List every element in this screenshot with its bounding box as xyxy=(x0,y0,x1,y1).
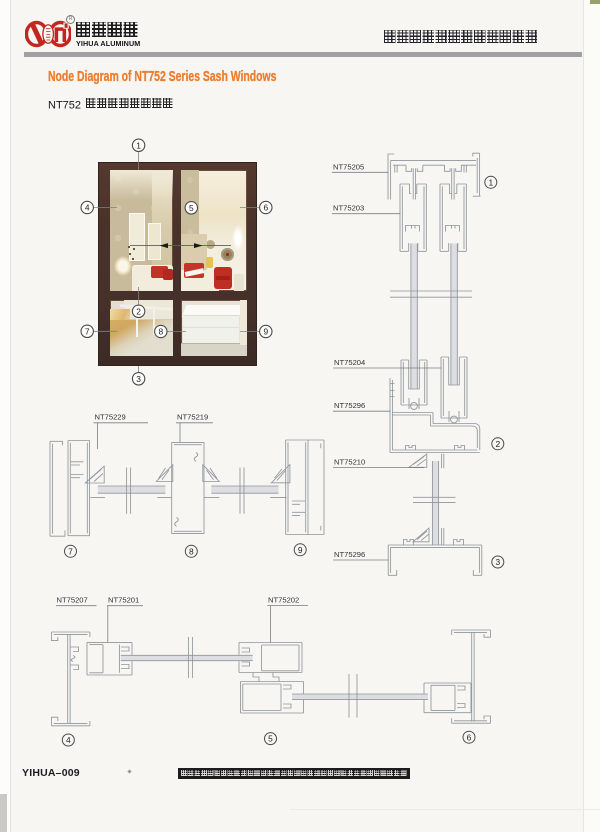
svg-text:2: 2 xyxy=(136,306,141,316)
svg-text:NT75201: NT75201 xyxy=(108,595,139,604)
svg-text:1: 1 xyxy=(136,140,141,150)
svg-text:NT75229: NT75229 xyxy=(95,413,126,422)
svg-text:7: 7 xyxy=(85,326,90,336)
svg-text:5: 5 xyxy=(189,203,194,213)
svg-text:4: 4 xyxy=(66,735,71,745)
svg-text:6: 6 xyxy=(263,203,268,213)
svg-text:3: 3 xyxy=(136,374,141,384)
svg-text:4: 4 xyxy=(85,203,90,213)
svg-text:6: 6 xyxy=(467,732,472,742)
svg-text:NT75204: NT75204 xyxy=(334,358,365,367)
svg-text:NT75202: NT75202 xyxy=(268,595,299,604)
svg-text:3: 3 xyxy=(495,557,500,567)
svg-text:5: 5 xyxy=(268,734,273,744)
svg-text:NT75219: NT75219 xyxy=(177,413,208,422)
svg-text:NT75205: NT75205 xyxy=(333,163,364,172)
svg-text:NT75207: NT75207 xyxy=(57,595,88,604)
svg-text:NT75296: NT75296 xyxy=(334,401,365,410)
svg-text:7: 7 xyxy=(68,546,73,556)
svg-text:1: 1 xyxy=(488,177,493,187)
svg-text:9: 9 xyxy=(263,327,268,337)
svg-text:NT75210: NT75210 xyxy=(334,457,365,466)
svg-text:8: 8 xyxy=(158,327,163,337)
svg-text:2: 2 xyxy=(495,439,500,449)
svg-text:NT75296: NT75296 xyxy=(334,550,365,559)
svg-text:8: 8 xyxy=(189,546,194,556)
svg-text:9: 9 xyxy=(298,545,303,555)
svg-text:NT75203: NT75203 xyxy=(333,204,364,213)
